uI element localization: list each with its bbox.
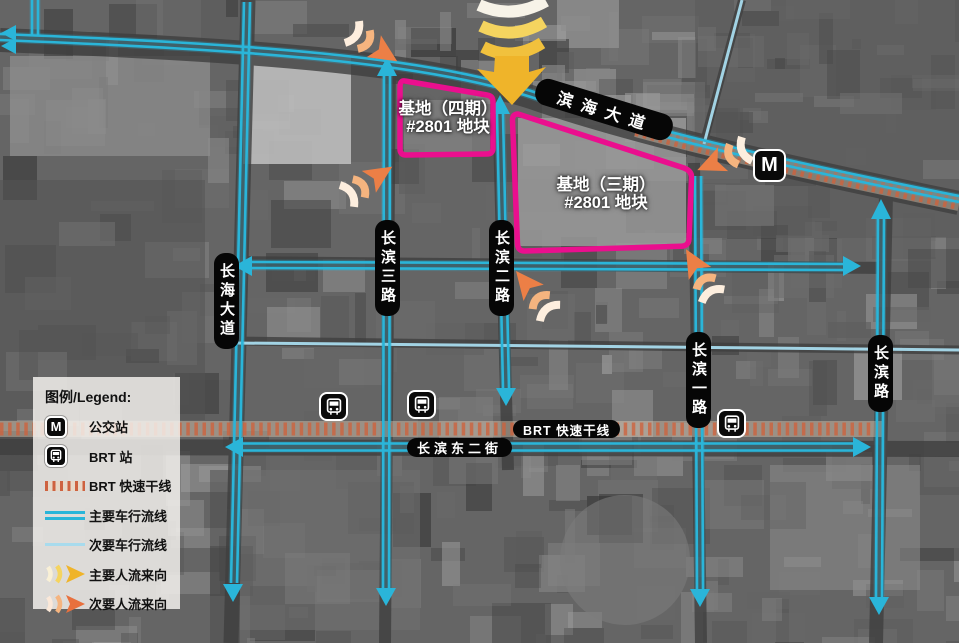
- brt-station-icon: [45, 445, 67, 467]
- plot-label-phase4: 基地（四期） #2801 地块: [392, 100, 504, 136]
- bus-icon: [48, 448, 64, 464]
- road-label-changbin-road: 长滨路: [868, 335, 893, 412]
- road-label-changbin-east-2nd-street: 长滨东二街: [407, 438, 512, 457]
- minor-pedestrian-arrow-swatch: [45, 594, 87, 614]
- legend-item-label: 主要人流来向: [89, 565, 167, 584]
- road-label-changbin-3rd-road: 长滨三路: [375, 220, 400, 316]
- legend-item-major-vehicle-flow: 主要车行流线: [45, 503, 170, 529]
- bus-icon: [323, 396, 345, 418]
- legend-item-label: 公交站: [89, 417, 128, 436]
- legend-panel: 图例/Legend: M 公交站 BRT 站 BRT 快速干线 主要车行流线 次…: [33, 377, 180, 609]
- legend-item-label: 次要人流来向: [89, 594, 167, 613]
- bus-icon: [721, 413, 743, 435]
- road-label-changbin-2nd-road: 长滨二路: [489, 220, 514, 316]
- brt-station-icon: [717, 409, 746, 438]
- legend-item-minor-vehicle-flow: 次要车行流线: [45, 532, 170, 558]
- legend-item-minor-pedestrian-flow: 次要人流来向: [45, 591, 170, 617]
- brt-trunk-line-label: BRT 快速干线: [513, 420, 620, 438]
- brt-station-icon: [407, 390, 436, 419]
- legend-item-label: 主要车行流线: [89, 506, 167, 525]
- major-vehicle-flow-swatch: [45, 511, 85, 520]
- brt-line-swatch: [45, 481, 85, 491]
- plot-label-phase3: 基地（三期） #2801 地块: [538, 176, 674, 212]
- legend-item-label: BRT 站: [89, 447, 132, 466]
- site-analysis-map: 滨海大道 长海大道 长滨三路 长滨二路 长滨一路 长滨路 长滨东二街 BRT 快…: [0, 0, 959, 643]
- legend-item-label: BRT 快速干线: [89, 476, 171, 495]
- bus-icon: [411, 394, 433, 416]
- road-label-changbin-1st-road: 长滨一路: [686, 332, 711, 428]
- legend-title: 图例/Legend:: [45, 387, 170, 407]
- brt-station-icon: [319, 392, 348, 421]
- legend-item-label: 次要车行流线: [89, 535, 167, 554]
- legend-item-brt-station: BRT 站: [45, 444, 170, 470]
- minor-vehicle-flow-swatch: [45, 543, 85, 546]
- legend-item-metro-station: M 公交站: [45, 414, 170, 440]
- legend-item-brt-trunk-line: BRT 快速干线: [45, 473, 170, 499]
- metro-station-icon: M: [753, 149, 786, 182]
- metro-station-icon: M: [45, 416, 67, 438]
- road-label-changhai-avenue: 长海大道: [214, 253, 239, 349]
- major-pedestrian-arrow-swatch: [45, 564, 87, 584]
- legend-item-major-pedestrian-flow: 主要人流来向: [45, 562, 170, 588]
